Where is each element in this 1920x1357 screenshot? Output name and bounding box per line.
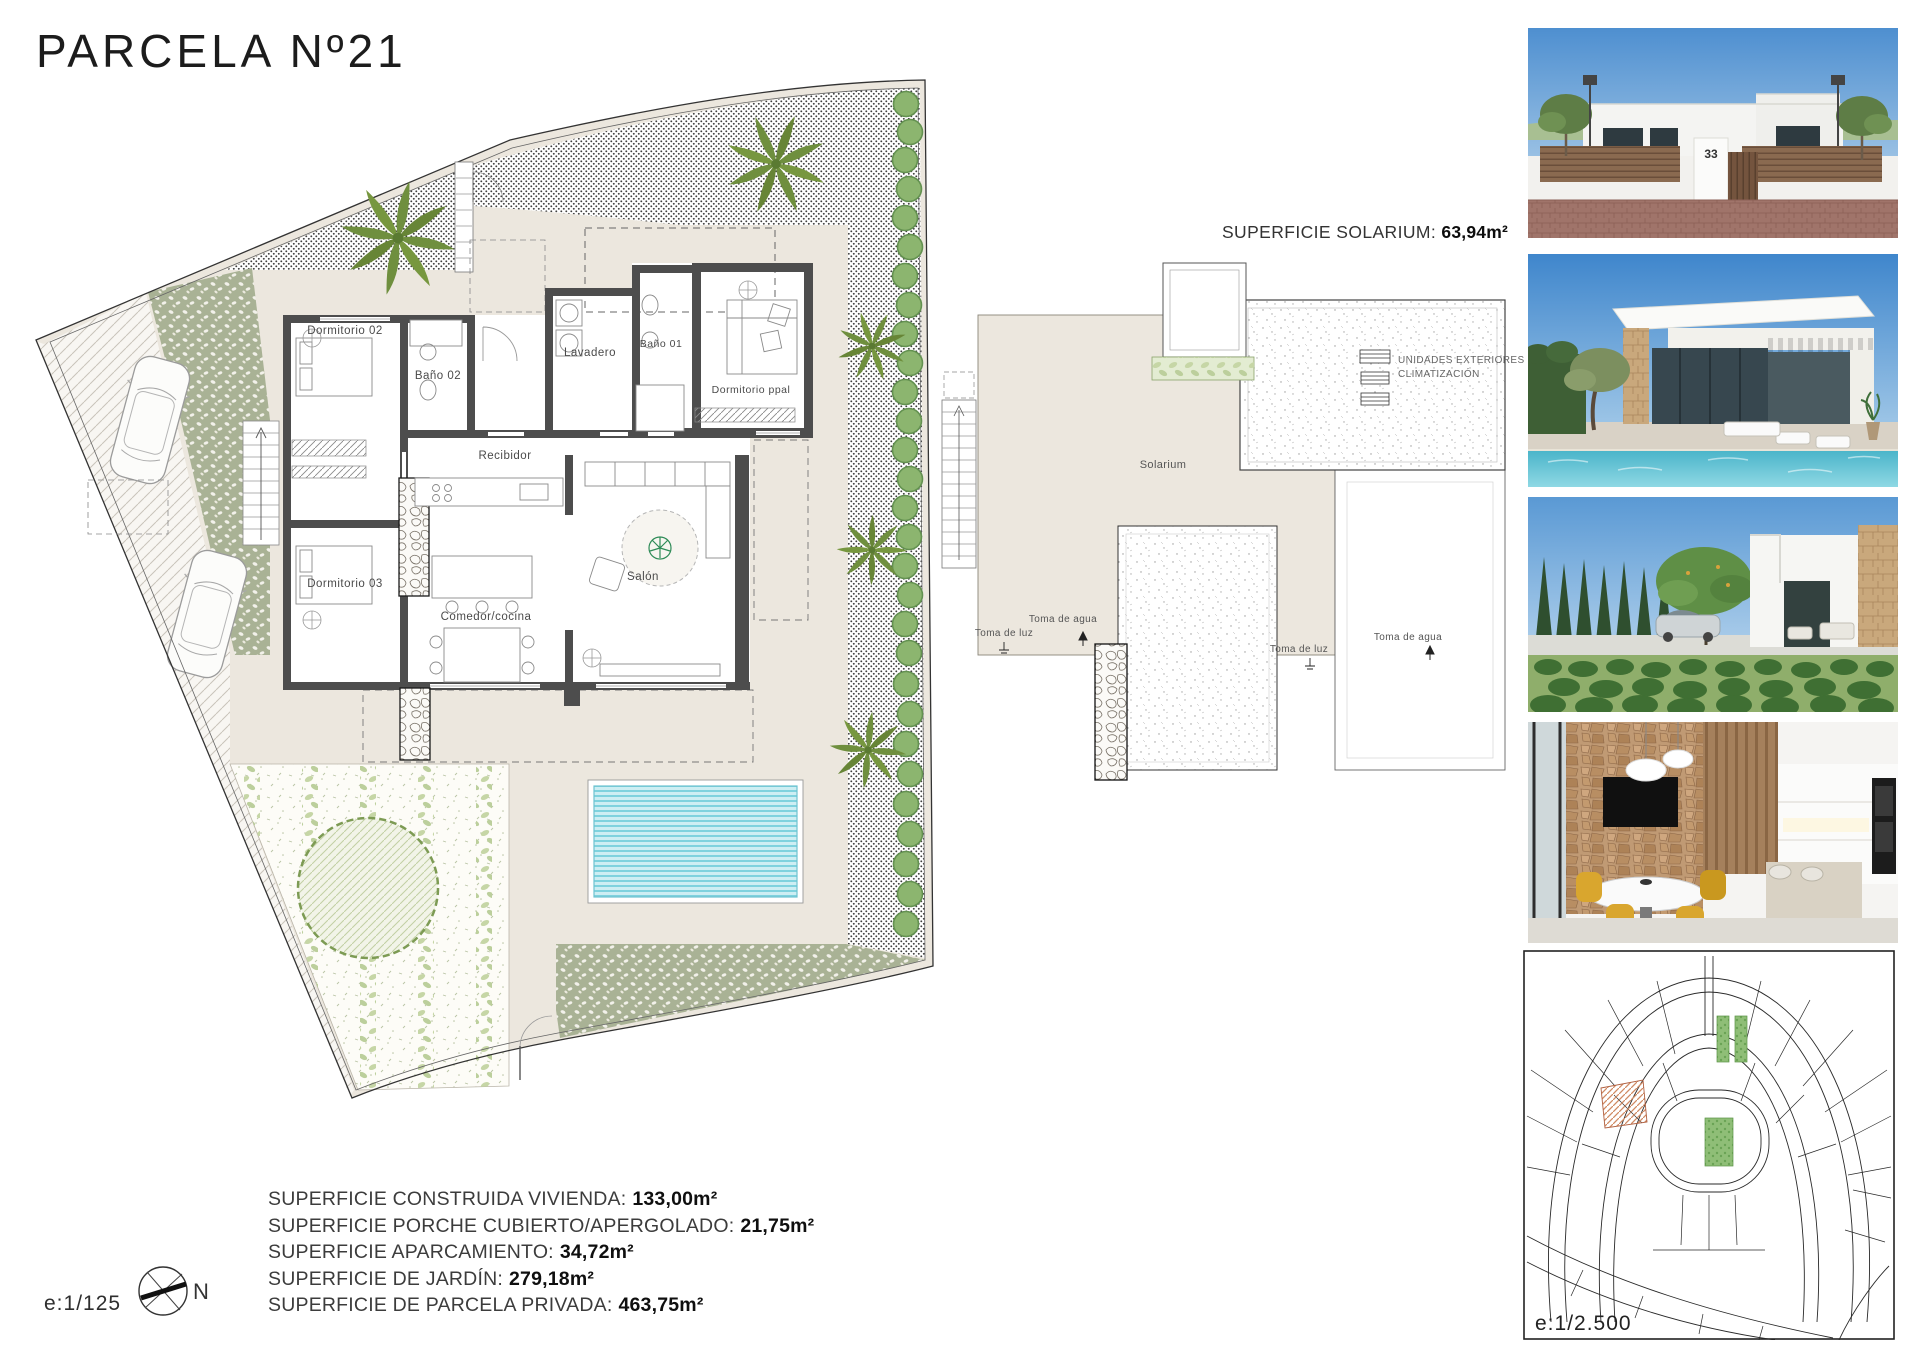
gravel-triangle-bottom xyxy=(556,944,926,1038)
parked-car-photo xyxy=(1656,610,1720,642)
surface-summary: SUPERFICIE CONSTRUIDA VIVIENDA:133,00m² … xyxy=(268,1186,908,1319)
solarium-heading-value: 63,94m² xyxy=(1441,222,1508,242)
solarium-stairs xyxy=(942,372,976,568)
site-plan-scale: e:1/2.500 xyxy=(1535,1312,1632,1335)
plan-scale-label: e:1/125 xyxy=(44,1292,121,1316)
highlighted-parcel xyxy=(1601,1080,1647,1128)
surface-value: 133,00m² xyxy=(632,1188,717,1210)
solarium-heading: SUPERFICIE SOLARIUM: 63,94m² xyxy=(1040,222,1508,243)
room-label-dormitorio-ppal: Dormitorio ppal xyxy=(712,384,791,396)
solarium-label: Solarium xyxy=(1140,459,1187,471)
room-label-dormitorio03: Dormitorio 03 xyxy=(307,578,383,590)
surface-value: 279,18m² xyxy=(509,1268,594,1290)
ac-units xyxy=(1360,350,1390,405)
surface-row: SUPERFICIE DE JARDÍN:279,18m² xyxy=(268,1266,908,1293)
surface-row: SUPERFICIE APARCAMIENTO:34,72m² xyxy=(268,1239,908,1266)
lower-roof xyxy=(1335,470,1505,770)
water-tap-label: Toma de agua xyxy=(1029,614,1097,625)
courtyard-void xyxy=(1118,526,1277,770)
round-hedge-tree xyxy=(298,818,438,958)
planter xyxy=(1152,357,1254,380)
surface-label: SUPERFICIE DE PARCELA PRIVADA: xyxy=(268,1294,612,1316)
surface-value: 21,75m² xyxy=(740,1215,814,1237)
light-tap-label: Toma de luz xyxy=(1270,644,1328,655)
surface-value: 463,75m² xyxy=(618,1294,703,1316)
compass-north-label: N xyxy=(193,1279,209,1304)
room-label-bano01: Baño 01 xyxy=(640,338,683,350)
parcel-plan: Dormitorio 02 Baño 02 Lavadero Baño 01 D… xyxy=(36,80,933,1098)
room-label-recibidor: Recibidor xyxy=(478,450,531,462)
surface-row: SUPERFICIE PORCHE CUBIERTO/APERGOLADO:21… xyxy=(268,1213,908,1240)
ac-units-area xyxy=(1240,300,1505,470)
light-tap-label: Toma de luz xyxy=(975,628,1033,639)
surface-label: SUPERFICIE DE JARDÍN: xyxy=(268,1268,503,1290)
surface-label: SUPERFICIE PORCHE CUBIERTO/APERGOLADO: xyxy=(268,1215,734,1237)
house-number: 33 xyxy=(1704,147,1718,161)
stone-chimney xyxy=(1095,644,1127,780)
compass-icon: N xyxy=(139,1267,209,1315)
surface-label: SUPERFICIE APARCAMIENTO: xyxy=(268,1241,554,1263)
room-label-lavadero: Lavadero xyxy=(564,347,616,359)
room-label-salon: Salón xyxy=(627,571,659,583)
elevator-shaft xyxy=(1163,263,1246,357)
room-label-comedor: Comedor/cocina xyxy=(441,611,532,623)
solarium-heading-label: SUPERFICIE SOLARIUM: xyxy=(1222,222,1436,242)
swimming-pool xyxy=(588,780,803,903)
surface-row: SUPERFICIE CONSTRUIDA VIVIENDA:133,00m² xyxy=(268,1186,908,1213)
ac-label-line1: UNIDADES EXTERIORES xyxy=(1398,355,1525,366)
photo-garden-view xyxy=(1528,497,1898,712)
surface-label: SUPERFICIE CONSTRUIDA VIVIENDA: xyxy=(268,1188,626,1210)
water-tap-label: Toma de agua xyxy=(1374,632,1442,643)
solarium-plan: Solarium UNIDADES EXTERIORES CLIMATIZACI… xyxy=(942,263,1525,780)
room-label-bano02: Baño 02 xyxy=(415,370,461,382)
photo-street-facade: 33 xyxy=(1528,28,1898,238)
site-plan: e:1/2.500 xyxy=(1523,950,1895,1340)
photo-pool-render xyxy=(1528,254,1898,487)
stone-pillar xyxy=(400,688,430,760)
photo-kitchen-interior xyxy=(1528,722,1898,943)
room-label-dormitorio02: Dormitorio 02 xyxy=(307,325,383,337)
ac-label-line2: CLIMATIZACIÓN xyxy=(1398,367,1480,380)
surface-row: SUPERFICIE DE PARCELA PRIVADA:463,75m² xyxy=(268,1292,908,1319)
surface-value: 34,72m² xyxy=(560,1241,634,1263)
porch-pillar xyxy=(564,690,580,706)
